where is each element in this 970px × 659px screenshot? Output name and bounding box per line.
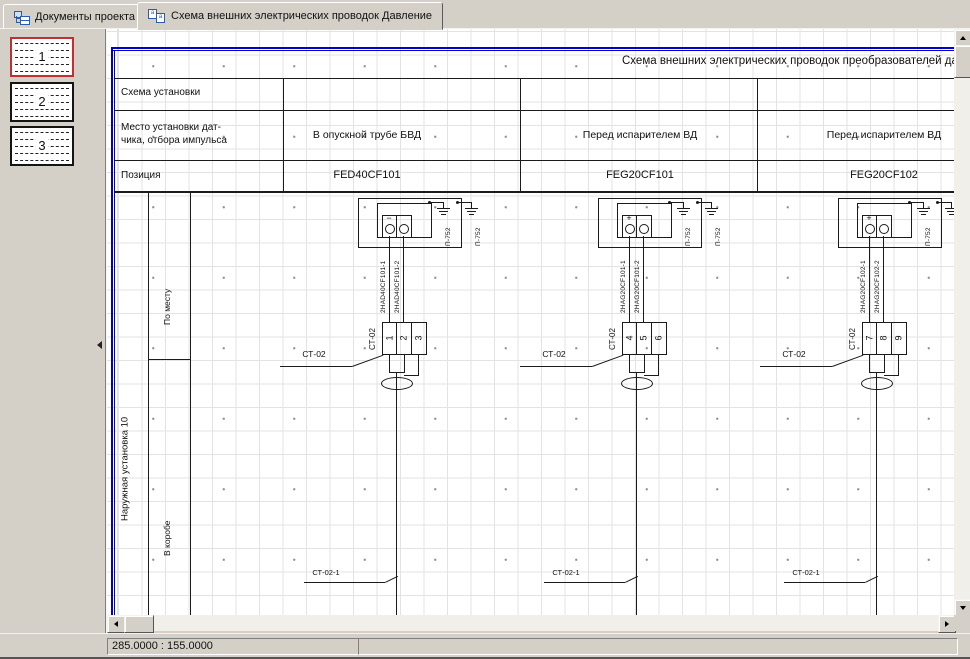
terminal-number: 5 — [636, 322, 651, 354]
schematic-line — [114, 50, 115, 615]
page-number: 1 — [35, 49, 48, 64]
wire — [396, 372, 397, 615]
schematic-line — [757, 78, 758, 193]
cable-core-label: 2HAD40CF101-1 — [378, 254, 390, 320]
row-label-position: Позиция — [121, 170, 161, 181]
schematic-line — [681, 214, 686, 215]
duct-label: В коробе — [161, 507, 173, 569]
wire — [644, 375, 659, 376]
schematic-line — [938, 202, 951, 203]
shield-box — [629, 354, 645, 373]
terminal-number: 7 — [862, 322, 877, 354]
horizontal-scrollbar[interactable] — [107, 615, 954, 631]
ground-icon — [936, 200, 954, 216]
cable-core-label: 2HAG20CF101-1 — [618, 254, 630, 320]
drawing-title: Схема внешних электрических проводок пре… — [622, 55, 954, 67]
wire — [418, 354, 419, 375]
cable-core-label: 2HAG20CF102-2 — [872, 254, 884, 320]
ground-wire-label: П-752 — [713, 220, 725, 254]
ground-wire-label: П-752 — [683, 220, 695, 254]
arrow-up-icon — [960, 36, 966, 40]
strip-leader-label: СТ-02 — [532, 349, 576, 359]
schematic-line — [437, 208, 450, 209]
schematic-line — [465, 208, 478, 209]
schematic-line — [15, 109, 69, 110]
cable-marker — [381, 377, 413, 390]
terminal-number: 9 — [891, 322, 906, 354]
schematic-line — [921, 214, 926, 215]
wire — [876, 372, 877, 615]
terminal-number: 8 — [876, 322, 891, 354]
collapse-left-icon — [97, 341, 102, 349]
terminal-number: 2 — [396, 322, 411, 354]
status-field — [358, 638, 958, 655]
polarity-sign: + — [862, 213, 876, 223]
strip-label: СТ-02 — [367, 320, 379, 358]
cable-core-label: 2HAG20CF102-1 — [858, 254, 870, 320]
ground-icon — [908, 200, 930, 216]
ground-icon — [428, 200, 450, 216]
schematic-line — [670, 202, 683, 203]
schematic-line — [283, 78, 284, 193]
schematic-line — [148, 359, 190, 360]
page-icon: aa — [148, 9, 165, 23]
schematic-line — [15, 153, 69, 154]
cable-bottom-label: СТ-02-1 — [780, 568, 832, 577]
schematic-line — [458, 202, 471, 203]
schematic-line — [945, 208, 954, 209]
shield-box — [389, 354, 405, 373]
schematic-line — [919, 211, 928, 212]
schematic-line — [111, 50, 954, 51]
location-cell: Перед испарителем ВД — [583, 129, 697, 141]
page-thumbnail-3[interactable]: 3 — [10, 126, 74, 166]
schematic-line — [441, 214, 446, 215]
schematic-line — [677, 208, 690, 209]
leader-line — [760, 366, 832, 367]
schematic-line — [111, 47, 113, 615]
position-cell: FEG20CF102 — [850, 169, 918, 181]
strip-leader-label: СТ-02 — [772, 349, 816, 359]
page-number: 2 — [35, 94, 48, 109]
schematic-line — [439, 211, 448, 212]
schematic-line — [15, 160, 69, 161]
location-cell: В опускной трубе БВД — [313, 129, 421, 141]
schematic-line — [947, 211, 954, 212]
wire — [658, 354, 659, 375]
position-cell: FEG20CF101 — [606, 169, 674, 181]
sensor-loop-3: + П-752 П-752 2HAG20CF102-1 2HAG20CF102-… — [838, 198, 954, 615]
polarity-sign: + — [622, 213, 636, 223]
schematic-line — [111, 47, 954, 49]
terminal-number: 1 — [382, 322, 397, 354]
tab-label: Схема внешних электрических проводок Дав… — [171, 10, 432, 22]
cable-bottom-label: СТ-02-1 — [300, 568, 352, 577]
location-cell: Перед испарителем ВД — [827, 129, 941, 141]
horizontal-scroll-thumb[interactable] — [124, 615, 154, 633]
ground-wire-label: П-752 — [923, 220, 935, 254]
leader-line — [304, 582, 385, 583]
page-number: 3 — [35, 138, 48, 153]
tab-project-documents[interactable]: Документы проекта — [3, 4, 146, 29]
terminal-number: 3 — [411, 322, 426, 354]
schematic-line — [15, 43, 69, 44]
scroll-left-button[interactable] — [107, 615, 125, 633]
schematic-line — [520, 78, 521, 193]
tab-bar: Документы проекта aa Схема внешних элект… — [0, 0, 970, 29]
local-label: По месту — [161, 276, 173, 338]
terminal-circle — [865, 224, 875, 234]
area-label: Наружная установка 10 — [119, 386, 131, 551]
schematic-line — [430, 202, 443, 203]
cable-core-label: 2HAD40CF101-2 — [392, 254, 404, 320]
scrollbar-corner — [954, 615, 970, 631]
schematic-line — [709, 214, 714, 215]
schematic-line — [707, 211, 716, 212]
position-cell: FED40CF101 — [333, 169, 400, 181]
arrow-right-icon — [945, 621, 949, 627]
leader-line — [784, 582, 865, 583]
schematic-line — [115, 160, 954, 161]
ground-wire-label: П-752 — [443, 220, 455, 254]
sensor-loop-2: + П-752 П-752 2HAG20CF101-1 2HAG20CF101-… — [598, 198, 738, 615]
cable-marker — [861, 377, 893, 390]
ground-icon — [668, 200, 690, 216]
shield-box — [869, 354, 885, 373]
status-bar: 285.0000 : 155.0000 — [0, 633, 970, 658]
vertical-scroll-thumb[interactable] — [954, 45, 970, 78]
ground-wire-label: П-752 — [473, 220, 485, 254]
wire — [898, 354, 899, 375]
cursor-coordinates: 285.0000 : 155.0000 — [107, 638, 361, 655]
terminal-circle — [399, 224, 409, 234]
tab-label: Документы проекта — [35, 11, 135, 23]
terminal-number: 4 — [622, 322, 637, 354]
vertical-scrollbar[interactable] — [954, 29, 970, 615]
pages-panel: 1 2 3 — [0, 29, 105, 633]
drawing-canvas[interactable]: Схема внешних электрических проводок пре… — [107, 29, 954, 615]
terminal-circle — [879, 224, 889, 234]
schematic-line — [148, 193, 149, 615]
sensor-loop-1: − П-752 П-752 2HAD40CF101-1 2HAD40CF101-… — [358, 198, 498, 615]
ground-icon — [456, 200, 478, 216]
schematic-line — [190, 193, 191, 615]
schematic-line — [910, 202, 923, 203]
page-thumbnail-1[interactable]: 1 — [10, 37, 74, 77]
cable-marker — [621, 377, 653, 390]
application-window: Документы проекта aa Схема внешних элект… — [0, 0, 970, 659]
arrow-left-icon — [114, 621, 118, 627]
schematic-line — [15, 88, 69, 89]
project-tree-icon — [14, 10, 29, 23]
strip-label: СТ-02 — [607, 320, 619, 358]
schematic-line — [115, 191, 954, 193]
strip-leader-label: СТ-02 — [292, 349, 336, 359]
terminal-circle — [625, 224, 635, 234]
schematic-line — [15, 116, 69, 117]
schematic-line — [917, 208, 930, 209]
schematic-line — [15, 71, 69, 72]
schematic-line — [679, 211, 688, 212]
wire — [404, 375, 419, 376]
terminal-number: 6 — [651, 322, 666, 354]
schematic-line — [115, 78, 954, 79]
arrow-down-icon — [960, 606, 966, 610]
schematic-line — [469, 214, 474, 215]
row-label-place-2: чика, отбора импульса — [121, 135, 227, 146]
wire — [884, 375, 899, 376]
cable-core-label: 2HAG20CF101-2 — [632, 254, 644, 320]
schematic-line — [15, 132, 69, 133]
terminal-circle — [639, 224, 649, 234]
leader-line — [544, 582, 625, 583]
schematic-line — [15, 64, 69, 65]
panel-collapse-handle[interactable] — [95, 337, 104, 353]
leader-line — [280, 366, 352, 367]
tab-wiring-diagram[interactable]: aa Схема внешних электрических проводок … — [137, 2, 443, 30]
ground-icon — [696, 200, 718, 216]
wire — [636, 372, 637, 615]
schematic-line — [698, 202, 711, 203]
schematic-line — [115, 110, 954, 111]
polarity-sign: − — [382, 213, 396, 223]
strip-label: СТ-02 — [847, 320, 859, 358]
row-label-scheme: Схема установки — [121, 87, 200, 98]
leader-line — [520, 366, 592, 367]
schematic-line — [467, 211, 476, 212]
schematic-line — [705, 208, 718, 209]
row-label-place-1: Место установки дат- — [121, 122, 221, 133]
terminal-circle — [385, 224, 395, 234]
cable-bottom-label: СТ-02-1 — [540, 568, 592, 577]
page-thumbnail-2[interactable]: 2 — [10, 82, 74, 122]
